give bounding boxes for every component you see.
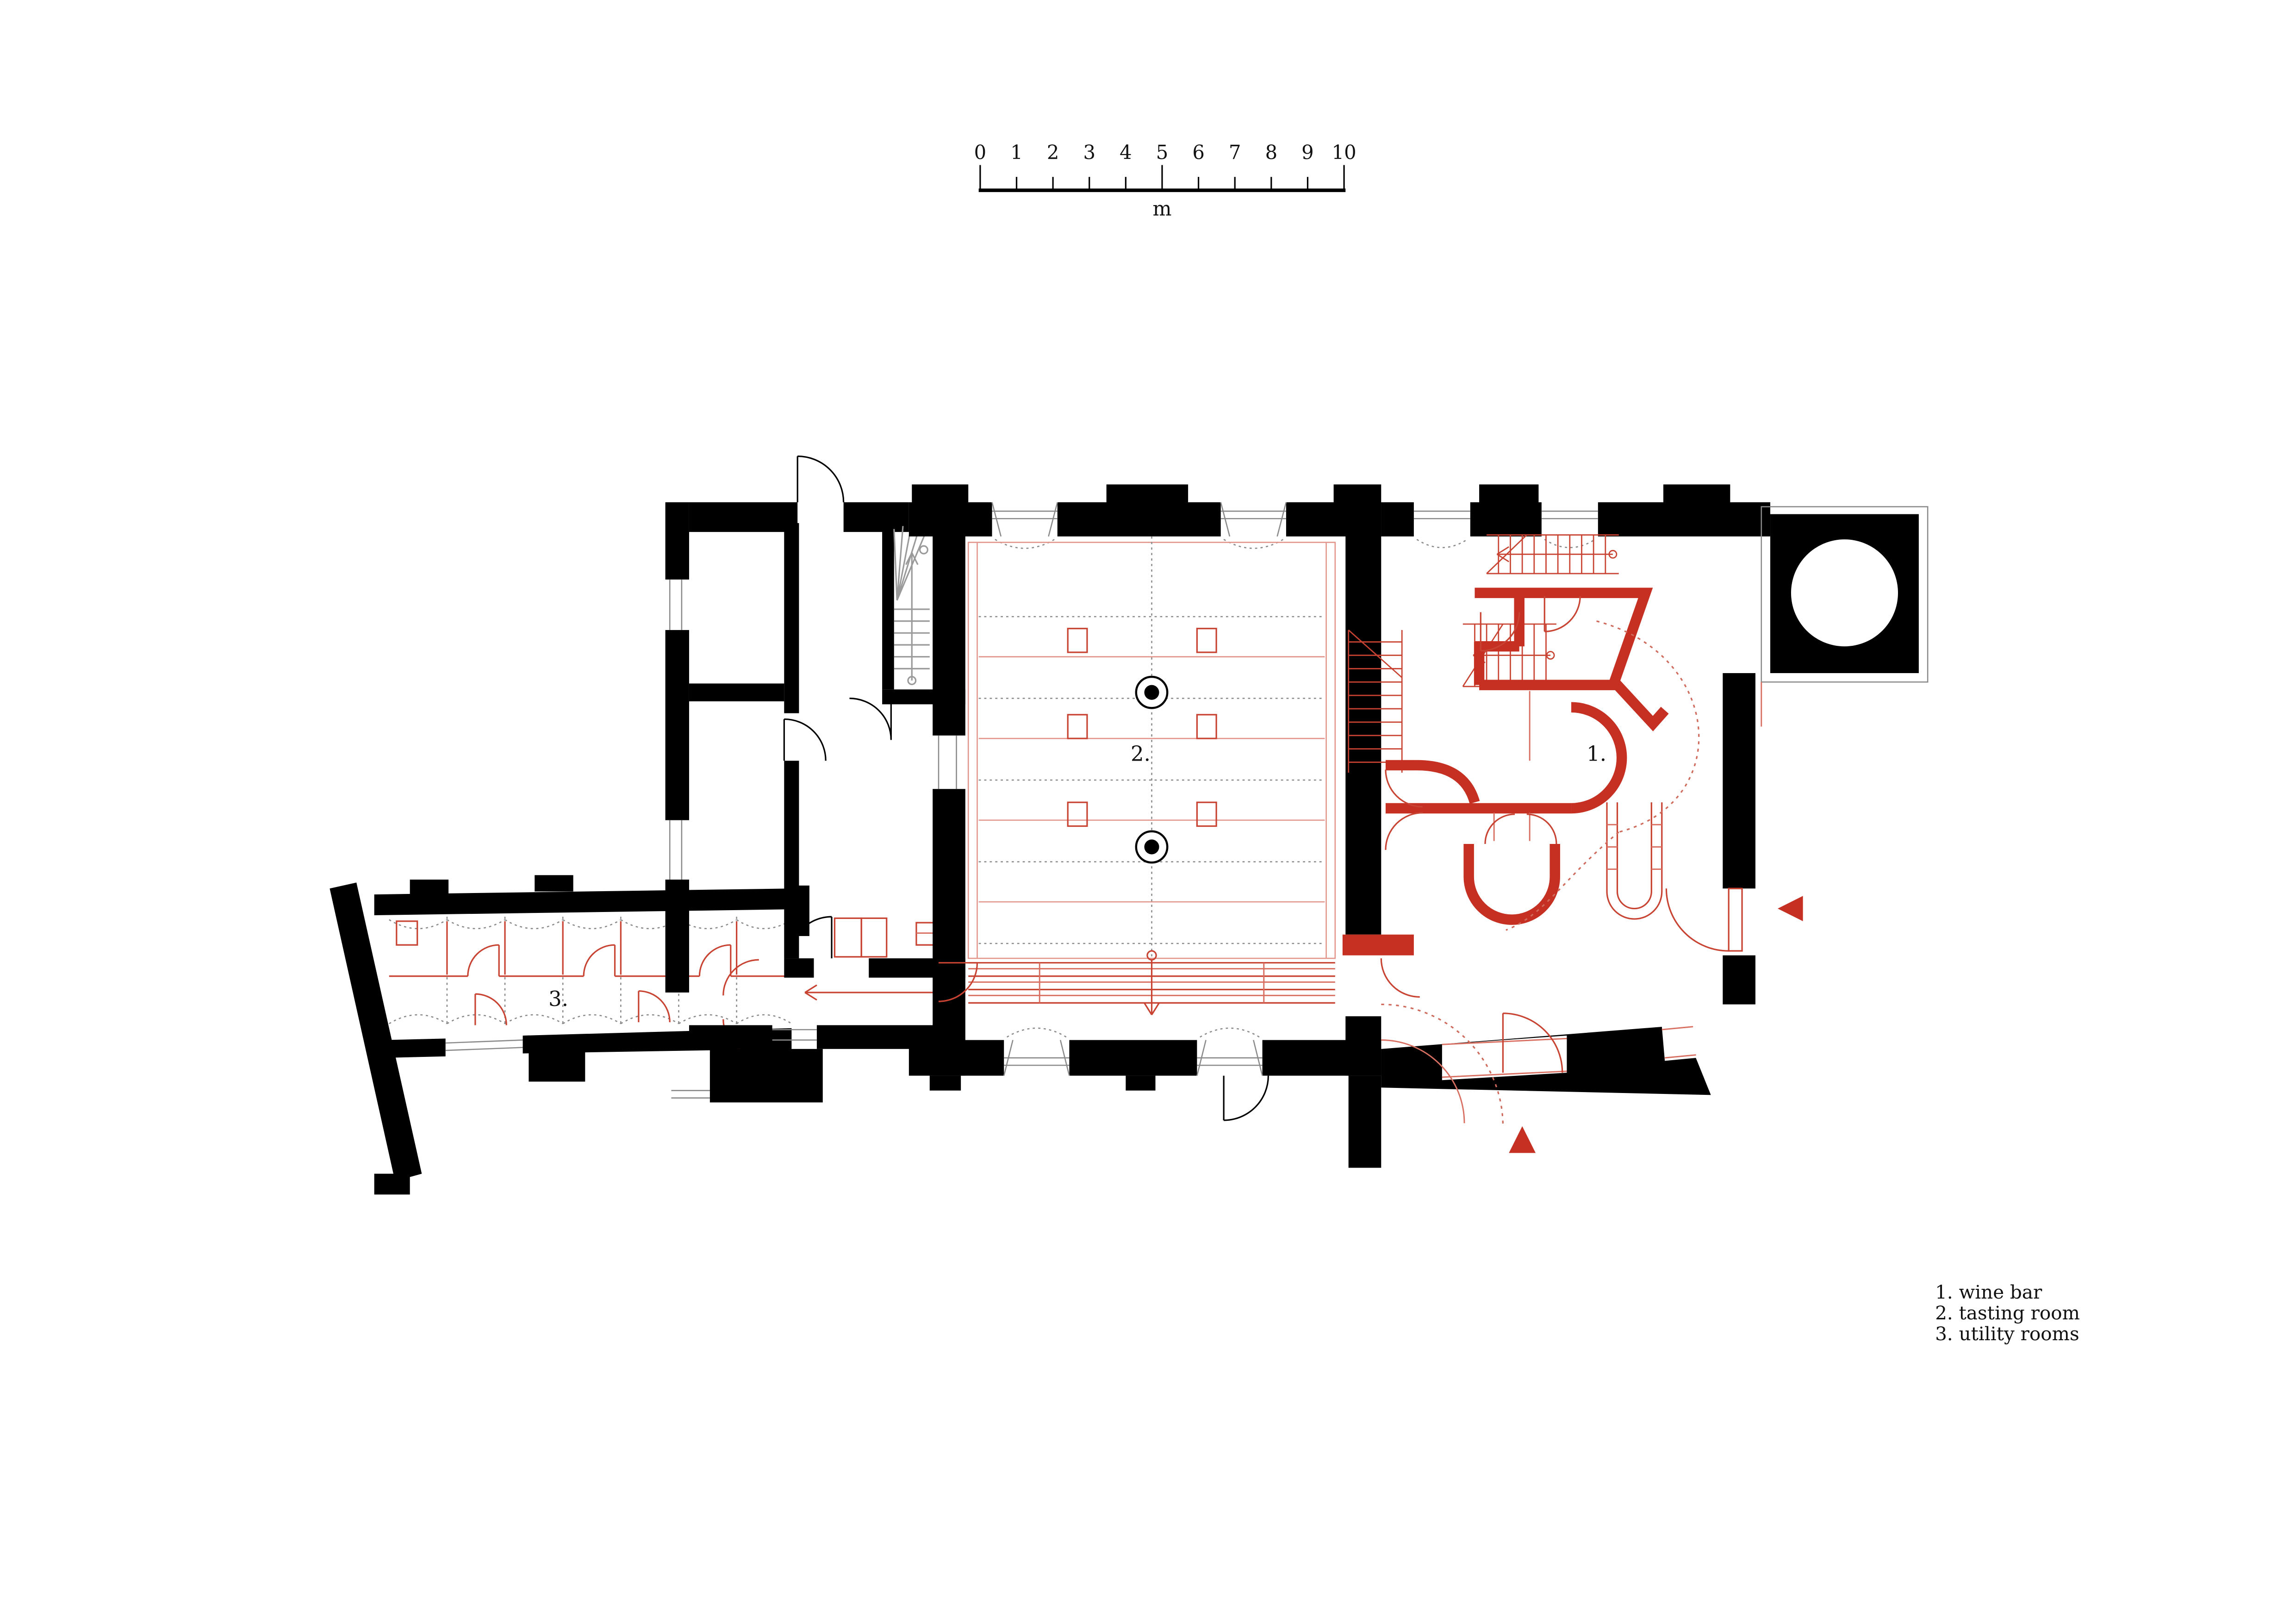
room-label-utility: 3. [548,987,568,1011]
annex-partition [784,523,799,713]
scale-tick-label: 0 [974,141,987,164]
corridor-buttress [710,1049,823,1103]
pilaster [912,484,968,504]
entrance-door-swing [797,456,843,502]
legend-item: 3. utility rooms [1935,1323,2079,1345]
hall-left-wall [933,502,965,736]
left-door-reveal [939,736,957,789]
legend-item: 1. wine bar [1935,1281,2042,1303]
new-opening-threshold [1343,935,1414,956]
scale-tick-label: 7 [1229,141,1241,164]
tower [1761,507,1928,682]
window-opening [1542,500,1598,540]
scale-unit-label: m [1152,198,1171,221]
site-boundary-foot [374,1174,410,1194]
annex-partition [784,761,799,958]
window-opening [1221,500,1286,540]
annex-top-wall [844,502,909,532]
vestibule-wall [1349,1076,1381,1168]
scale-tick-label: 2 [1047,141,1059,164]
wing-pilaster [535,875,573,891]
scale-tick-label: 3 [1083,141,1095,164]
annex [666,456,965,1102]
exterior-path-lines [671,1091,709,1098]
entrance-arrow-south [1509,1126,1536,1153]
pilaster [1479,484,1538,504]
pilaster [1334,484,1381,504]
site-boundary-wall [330,882,422,1181]
bar-counter-u [1607,802,1662,919]
corridor-bottom-wall [689,1025,772,1049]
annex-left-wall [666,630,689,820]
scale-bar: 0 1 2 3 4 5 6 7 8 9 10 m [974,141,1356,221]
stair-flight-a [1487,535,1619,574]
room-label-tasting: 2. [1131,741,1151,766]
hall-right-wall [1345,502,1381,935]
annex-bottom-wall [784,958,814,978]
hall-top-wall [909,502,1381,537]
hall-left-wall [933,789,965,1075]
oven-circle [1791,539,1898,646]
scale-tick-label: 1 [1010,141,1023,164]
annex-top-wall [689,502,797,532]
wing-pilaster [529,1049,585,1082]
dotted-curves [1506,621,1699,930]
annex-left-wall [666,502,689,580]
scale-tick-label: 5 [1156,141,1169,164]
annex-partition [882,523,894,689]
ramp-arrow [805,972,953,1013]
steps-band [968,951,1335,1015]
column [1136,677,1167,708]
table-markers [1068,629,1216,826]
new-red-walls [1386,593,1665,920]
tasting-room: 2. [909,484,1414,1120]
hall-bottom-wall [909,1040,1381,1076]
pilaster [930,1076,961,1091]
entrance-arrow-east [1778,896,1803,921]
floor-pattern [968,537,1335,958]
column [1136,831,1167,862]
pilaster [1126,1076,1155,1091]
pilaster [1107,484,1188,504]
scale-tick-label: 10 [1332,141,1356,164]
stair [894,523,930,684]
side-entrance-door [1666,888,1742,951]
floor-plan-page: 0 1 2 3 4 5 6 7 8 9 10 m [0,0,2296,1624]
red-counter [834,918,937,956]
scale-tick-label: 6 [1192,141,1205,164]
bar-right-wall [1723,956,1755,1005]
floor-plan-drawing: 0 1 2 3 4 5 6 7 8 9 10 m [0,0,2296,1624]
wing-window [446,1040,523,1050]
pilaster [1663,484,1730,504]
bar-right-wall [1723,673,1755,888]
legend-item: 2. tasting room [1935,1302,2080,1324]
garden-door-swing [1224,1076,1268,1120]
window-opening [1414,500,1470,540]
scale-tick-label: 9 [1301,141,1314,164]
scale-tick-label: 4 [1120,141,1132,164]
door-opening [1442,1036,1567,1080]
annex-partition [689,683,784,701]
scale-tick-label: 8 [1265,141,1278,164]
wine-bar: 1. [1349,484,1928,1168]
room-label-winebar: 1. [1587,741,1606,766]
scale-ticks [979,165,1346,191]
wing-pilaster [410,880,448,896]
window-opening [992,500,1058,540]
annex-left-wall [666,880,689,993]
hall-right-wall [1345,1016,1381,1075]
legend: 1. wine bar 2. tasting room 3. utility r… [1935,1281,2080,1345]
